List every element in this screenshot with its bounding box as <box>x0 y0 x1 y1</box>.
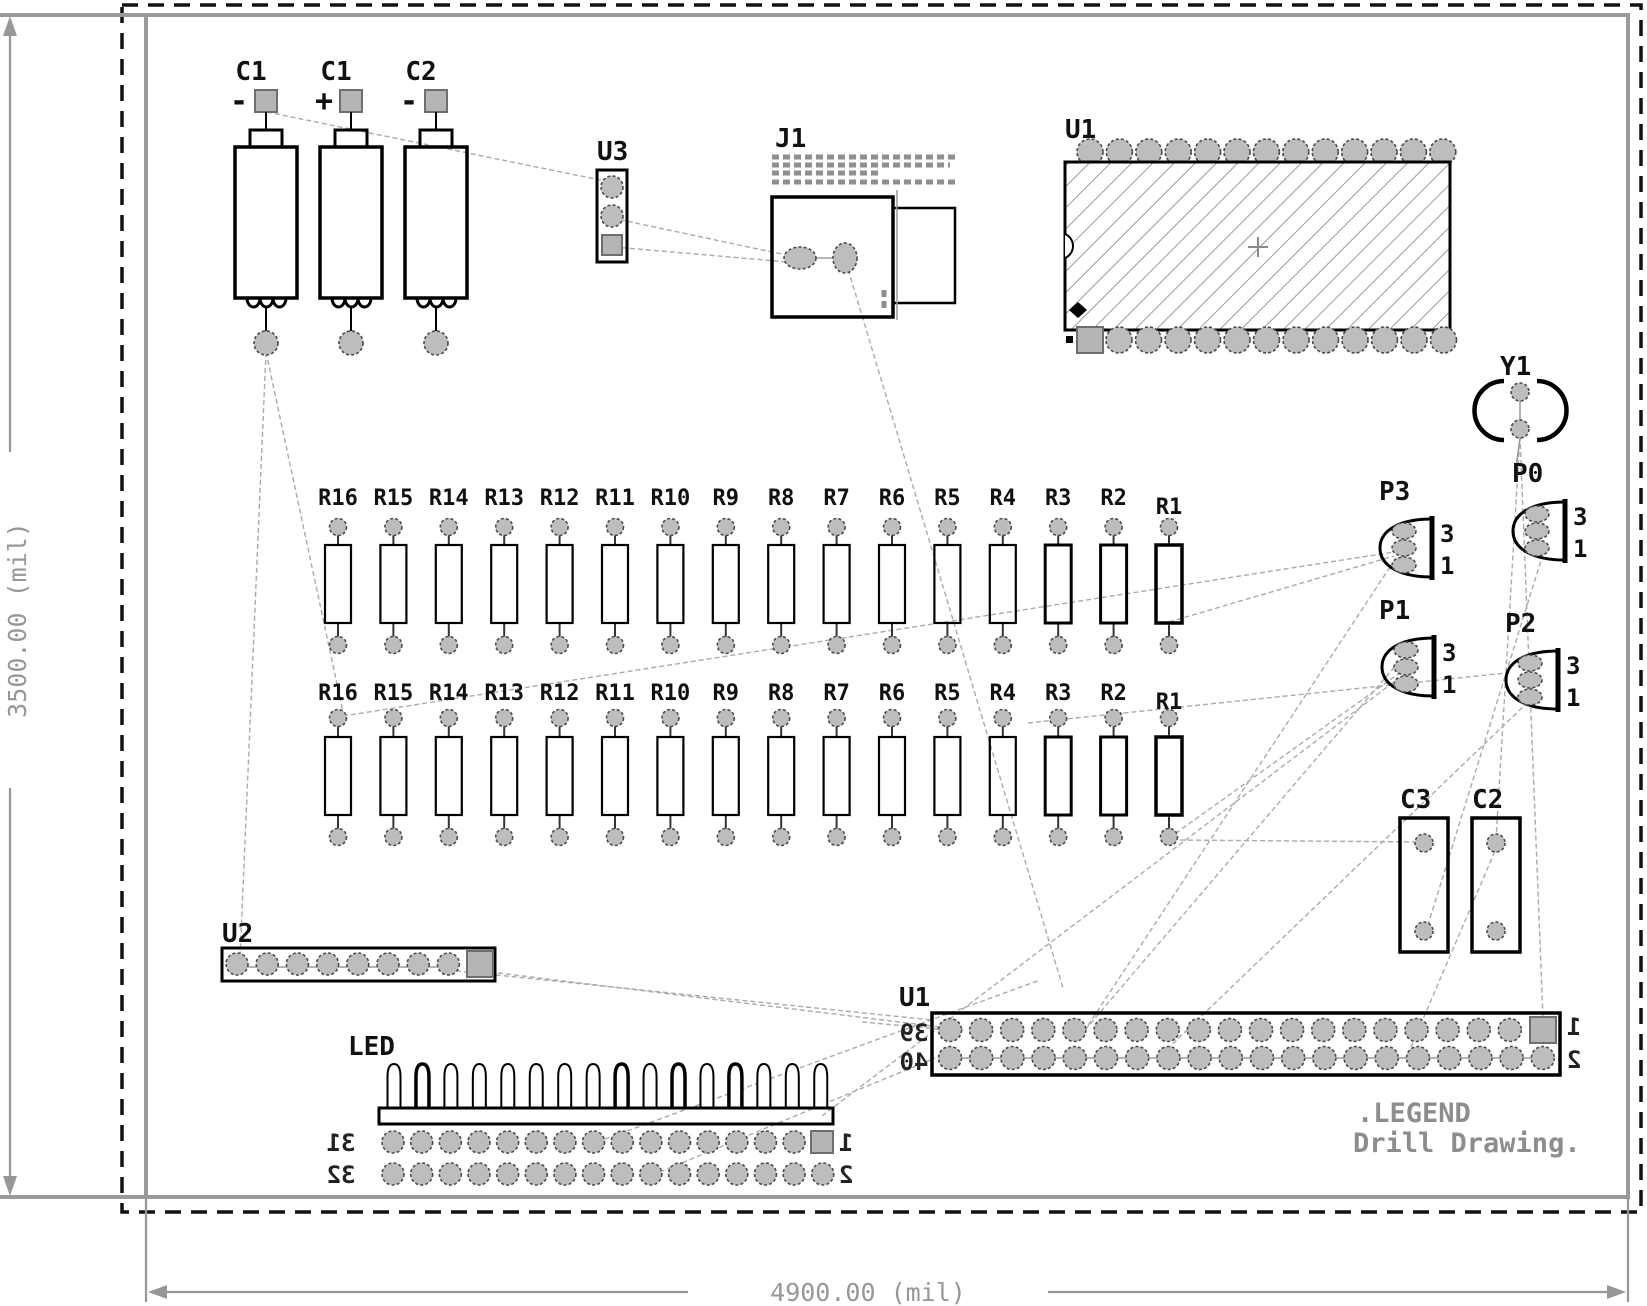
round-pad <box>583 1131 605 1153</box>
led-lens <box>644 1064 657 1108</box>
resistor-label: R14 <box>429 681 469 706</box>
round-pad <box>939 519 956 536</box>
round-pad <box>717 710 734 727</box>
round-pad <box>1136 327 1162 353</box>
ratsnest-line <box>1085 567 1390 1030</box>
resistor-body <box>1045 545 1071 623</box>
resistor-label: R6 <box>879 681 906 706</box>
round-pad <box>525 1163 547 1185</box>
round-pad <box>551 710 568 727</box>
round-pad <box>726 1163 748 1185</box>
mirrored-pin-number: 2 <box>1567 1046 1581 1074</box>
resistor-label: R4 <box>990 681 1017 706</box>
round-pad <box>1195 327 1221 353</box>
square-pad <box>811 1131 833 1153</box>
pin-number: 1 <box>1566 684 1580 712</box>
round-pad <box>551 637 568 654</box>
resistor-body <box>1101 545 1127 623</box>
resistor-row2-r9: R9 <box>713 681 740 846</box>
resistor-row1-r16: R16 <box>318 486 358 654</box>
resistor-body <box>1156 545 1182 623</box>
resistor-row1-r11: R11 <box>595 486 635 654</box>
component-c2-right: C2 <box>1472 785 1520 952</box>
round-pad <box>286 953 308 975</box>
component-led: LED 31 32 1 2 <box>327 1032 854 1189</box>
round-pad <box>884 710 901 727</box>
round-pad <box>754 1131 776 1153</box>
pin-number: 3 <box>1566 652 1580 680</box>
resistor-row2-r5: R5 <box>934 681 961 846</box>
round-pad <box>525 1131 547 1153</box>
component-p0: P0 3 1 <box>1512 459 1587 563</box>
resistor-label: R14 <box>429 486 469 511</box>
round-pad <box>754 1163 776 1185</box>
round-pad <box>497 1131 519 1153</box>
resistor-body <box>824 545 850 623</box>
oval-pad <box>1525 540 1549 556</box>
round-pad <box>551 829 568 846</box>
resistor-row1-r8: R8 <box>768 486 795 654</box>
round-pad <box>330 519 347 536</box>
round-pad <box>773 519 790 536</box>
round-pad <box>970 1019 993 1042</box>
round-pad <box>1511 420 1529 438</box>
polarity-mark: - <box>400 84 418 119</box>
arrow-left-icon <box>148 1285 167 1299</box>
component-c2-top: C2 - <box>400 57 467 355</box>
led-lens <box>615 1064 628 1108</box>
square-pad <box>1077 327 1103 353</box>
round-pad <box>1250 1019 1273 1042</box>
u1-connector-body <box>932 1013 1560 1075</box>
round-pad <box>1125 1019 1148 1042</box>
round-pad <box>440 829 457 846</box>
square-pad <box>467 951 493 977</box>
round-pad <box>662 637 679 654</box>
round-pad <box>607 637 624 654</box>
resistor-body <box>934 737 960 815</box>
resistor-row1-r13: R13 <box>484 486 524 654</box>
resistor-body <box>1045 737 1071 815</box>
round-pad <box>828 710 845 727</box>
round-pad <box>726 1131 748 1153</box>
resistor-row2-r6: R6 <box>879 681 906 846</box>
dimension-bottom: 4900.00 (mil) <box>148 1278 1626 1306</box>
round-pad <box>1105 710 1122 727</box>
mirrored-pin-number: 1 <box>839 1129 853 1157</box>
round-pad <box>1498 1019 1521 1042</box>
resistor-body <box>713 737 739 815</box>
resistor-label: R6 <box>879 486 906 511</box>
component-p3: P3 3 1 <box>1379 477 1454 580</box>
ratsnest-line <box>1085 664 1397 1030</box>
round-pad <box>437 953 459 975</box>
led-lens <box>700 1064 713 1108</box>
oval-pad <box>1525 523 1549 539</box>
led-lens <box>558 1064 571 1108</box>
round-pad <box>884 829 901 846</box>
resistor-label: R12 <box>540 486 580 511</box>
resistor-row2-r4: R4 <box>990 681 1017 846</box>
round-pad <box>407 953 429 975</box>
round-pad <box>601 205 623 227</box>
refdes-label: C1 <box>235 57 266 87</box>
resistor-label: R8 <box>768 681 795 706</box>
round-pad <box>1106 327 1132 353</box>
resistor-label: R2 <box>1100 486 1127 511</box>
crystal-case-arc <box>1537 381 1567 440</box>
round-pad <box>1283 327 1309 353</box>
oval-pad <box>1392 540 1416 556</box>
resistor-row2-r1: R1 <box>1156 690 1183 846</box>
round-pad <box>828 519 845 536</box>
resistor-body <box>325 737 351 815</box>
ratsnest-line <box>490 972 965 1030</box>
resistor-body <box>934 545 960 623</box>
round-pad <box>1224 327 1250 353</box>
round-pad <box>1156 1019 1179 1042</box>
oval-pad <box>1392 523 1416 539</box>
refdes-label: U3 <box>597 137 628 167</box>
led-lens <box>672 1064 685 1108</box>
round-pad <box>611 1131 633 1153</box>
round-pad <box>1219 1047 1242 1070</box>
oval-pad <box>784 247 816 269</box>
round-pad <box>1467 1019 1490 1042</box>
resistor-label: R4 <box>990 486 1017 511</box>
square-pad <box>602 235 622 255</box>
round-pad <box>884 519 901 536</box>
round-pad <box>1251 1047 1274 1070</box>
resistor-body <box>325 545 351 623</box>
round-pad <box>669 1163 691 1185</box>
resistor-body <box>491 545 517 623</box>
round-pad <box>1105 829 1122 846</box>
round-pad <box>339 331 363 355</box>
arrow-down-icon <box>3 1176 17 1196</box>
round-pad <box>496 519 513 536</box>
round-pad <box>669 1131 691 1153</box>
round-pad <box>254 331 278 355</box>
oval-pad <box>1518 689 1542 705</box>
round-pad <box>1313 1047 1336 1070</box>
round-pad <box>1001 1019 1024 1042</box>
round-pad <box>994 710 1011 727</box>
resistor-label: R7 <box>823 681 850 706</box>
pin-number: 3 <box>1573 503 1587 531</box>
legend-title: .LEGEND <box>1357 1098 1471 1129</box>
round-pad <box>697 1163 719 1185</box>
refdes-label: U1 <box>899 983 930 1013</box>
round-pad <box>783 1163 805 1185</box>
round-pad <box>330 637 347 654</box>
resistor-label: R8 <box>768 486 795 511</box>
mirrored-pin-number: 39 <box>900 1019 929 1047</box>
round-pad <box>607 519 624 536</box>
round-pad <box>828 637 845 654</box>
oval-pad <box>1392 557 1416 573</box>
round-pad <box>1500 1047 1523 1070</box>
component-p2: P2 3 1 <box>1505 609 1580 712</box>
resistor-label: R3 <box>1045 486 1072 511</box>
component-c3: C3 <box>1400 785 1448 952</box>
resistor-arrays: R16R15R14R13R12R11R10R9R8R7R6R5R4R3R2R1R… <box>318 486 1182 846</box>
resistor-body <box>547 737 573 815</box>
mirrored-pin-number: 40 <box>900 1048 929 1076</box>
mirrored-pin-number: 1 <box>1567 1013 1581 1041</box>
resistor-label: R11 <box>595 486 635 511</box>
resistor-row2-r3: R3 <box>1045 681 1072 846</box>
round-pad <box>424 331 448 355</box>
round-pad <box>662 829 679 846</box>
round-pad <box>717 829 734 846</box>
resistor-row1-r7: R7 <box>823 486 850 654</box>
resistor-row2-r2: R2 <box>1100 681 1127 846</box>
round-pad <box>496 637 513 654</box>
round-pad <box>994 519 1011 536</box>
oval-pad <box>1394 642 1418 658</box>
resistor-body <box>1101 737 1127 815</box>
round-pad <box>1063 1047 1086 1070</box>
round-pad <box>1157 1047 1180 1070</box>
round-pad <box>554 1131 576 1153</box>
resistor-body <box>491 737 517 815</box>
pin-number: 3 <box>1442 639 1456 667</box>
round-pad <box>385 710 402 727</box>
resistor-label: R1 <box>1156 495 1183 520</box>
round-pad <box>884 637 901 654</box>
resistor-row1-r1: R1 <box>1156 495 1183 654</box>
resistor-body <box>713 545 739 623</box>
resistor-label: R16 <box>318 681 358 706</box>
round-pad <box>1161 637 1178 654</box>
led-lens <box>473 1064 486 1108</box>
board-width-dimension: 4900.00 (mil) <box>770 1278 966 1306</box>
round-pad <box>440 637 457 654</box>
round-pad <box>662 519 679 536</box>
refdes-label: P0 <box>1512 459 1543 489</box>
square-pad <box>340 90 362 112</box>
resistor-label: R5 <box>934 486 961 511</box>
round-pad <box>1032 1019 1055 1042</box>
round-pad <box>1063 1019 1086 1042</box>
round-pad <box>1374 1019 1397 1042</box>
component-u1-ic: U1 <box>1065 115 1457 353</box>
led-lens <box>416 1064 429 1108</box>
round-pad <box>496 710 513 727</box>
round-pad <box>226 953 248 975</box>
round-pad <box>1431 327 1457 353</box>
round-pad <box>385 637 402 654</box>
round-pad <box>717 519 734 536</box>
led-lens <box>786 1064 799 1108</box>
refdes-label: LED <box>348 1032 395 1062</box>
component-j1: J1 <box>772 124 957 320</box>
round-pad <box>1511 383 1529 401</box>
round-pad <box>1531 1047 1554 1070</box>
resistor-row1-r2: R2 <box>1100 486 1127 654</box>
round-pad <box>1343 1019 1366 1042</box>
round-pad <box>1469 1047 1492 1070</box>
round-pad <box>1401 327 1427 353</box>
oval-pad <box>1518 672 1542 688</box>
resistor-row2-r10: R10 <box>651 681 691 846</box>
round-pad <box>640 1131 662 1153</box>
resistor-body <box>879 545 905 623</box>
round-pad <box>1254 327 1280 353</box>
round-pad <box>468 1131 490 1153</box>
round-pad <box>1095 1047 1118 1070</box>
resistor-row1-r12: R12 <box>540 486 580 654</box>
polarity-mark: + <box>315 84 333 119</box>
resistor-body <box>1156 737 1182 815</box>
pin-number: 1 <box>1440 552 1454 580</box>
round-pad <box>382 1131 404 1153</box>
led-lens <box>388 1064 401 1108</box>
oval-pad <box>1394 659 1418 675</box>
pin-number: 3 <box>1440 520 1454 548</box>
ratsnest-line <box>1169 672 1401 838</box>
mirrored-pin-number: 32 <box>327 1161 356 1189</box>
resistor-row1-r9: R9 <box>713 486 740 654</box>
square-pad <box>255 90 277 112</box>
resistor-body <box>768 737 794 815</box>
round-pad <box>496 829 513 846</box>
resistor-body <box>436 737 462 815</box>
round-pad <box>1050 637 1067 654</box>
square-pad <box>1530 1017 1556 1043</box>
ratsnest-line <box>1172 840 1425 842</box>
resistor-body <box>824 737 850 815</box>
round-pad <box>939 1047 962 1070</box>
resistor-label: R15 <box>374 681 414 706</box>
round-pad <box>607 710 624 727</box>
resistor-row1-r10: R10 <box>651 486 691 654</box>
oval-pad <box>1394 676 1418 692</box>
component-u2: U2 <box>222 919 495 981</box>
ratsnest-line <box>846 262 1063 988</box>
refdes-label: U2 <box>222 919 253 949</box>
mirrored-pin-number: 31 <box>327 1129 356 1157</box>
round-pad <box>1126 1047 1149 1070</box>
resistor-body <box>547 545 573 623</box>
board-height-dimension: 3500.00 (mil) <box>3 522 32 718</box>
resistor-body <box>657 545 683 623</box>
round-pad <box>411 1131 433 1153</box>
resistor-label: R16 <box>318 486 358 511</box>
resistor-row2-r11: R11 <box>595 681 635 846</box>
resistor-row2-r13: R13 <box>484 681 524 846</box>
round-pad <box>773 710 790 727</box>
resistor-body <box>657 737 683 815</box>
round-pad <box>1105 637 1122 654</box>
resistor-body <box>768 545 794 623</box>
refdes-label: P2 <box>1505 609 1536 639</box>
resistor-row2-r14: R14 <box>429 681 469 846</box>
resistor-body <box>602 545 628 623</box>
resistor-row1-r14: R14 <box>429 486 469 654</box>
pin-number: 1 <box>1442 671 1456 699</box>
mirrored-pin-number: 2 <box>839 1161 853 1189</box>
refdes-label: P1 <box>1379 596 1410 626</box>
round-pad <box>1313 327 1339 353</box>
round-pad <box>377 953 399 975</box>
fiducial-dot <box>1066 336 1073 343</box>
resistor-label: R2 <box>1100 681 1127 706</box>
resistor-label: R9 <box>713 486 740 511</box>
resistor-label: R10 <box>651 681 691 706</box>
led-lens <box>587 1064 600 1108</box>
round-pad <box>1094 1019 1117 1042</box>
resistor-body <box>990 545 1016 623</box>
resistor-label: R12 <box>540 681 580 706</box>
round-pad <box>939 829 956 846</box>
resistor-label: R15 <box>374 486 414 511</box>
resistor-label: R9 <box>713 681 740 706</box>
round-pad <box>1312 1019 1335 1042</box>
round-pad <box>1050 710 1067 727</box>
led-pads <box>382 1131 834 1185</box>
round-pad <box>994 637 1011 654</box>
resistor-row1-r6: R6 <box>879 486 906 654</box>
component-c1b: C1 + <box>315 57 382 355</box>
j1-shield <box>893 208 955 303</box>
pin-number: 1 <box>1573 535 1587 563</box>
resistor-label: R13 <box>484 681 524 706</box>
legend-block: .LEGEND Drill Drawing. <box>1353 1098 1581 1159</box>
round-pad <box>1187 1019 1210 1042</box>
arrow-right-icon <box>1607 1285 1626 1299</box>
round-pad <box>385 829 402 846</box>
resistor-body <box>990 737 1016 815</box>
ratsnest-line <box>448 970 932 1020</box>
u2-pads <box>226 953 459 975</box>
round-pad <box>1050 829 1067 846</box>
round-pad <box>939 637 956 654</box>
round-pad <box>1032 1047 1055 1070</box>
round-pad <box>330 710 347 727</box>
round-pad <box>1375 1047 1398 1070</box>
round-pad <box>1344 1047 1367 1070</box>
round-pad <box>347 953 369 975</box>
led-lens <box>814 1064 827 1108</box>
resistor-row2-r12: R12 <box>540 681 580 846</box>
round-pad <box>717 637 734 654</box>
resistor-body <box>436 545 462 623</box>
component-c1a: C1 - <box>230 57 297 355</box>
resistor-label: R11 <box>595 681 635 706</box>
drill-drawing-canvas: 3500.00 (mil) 4900.00 (mil) C1 - C1 + C2… <box>0 0 1647 1306</box>
resistor-row2-r7: R7 <box>823 681 850 846</box>
round-pad <box>1407 1047 1430 1070</box>
oval-pad <box>1518 655 1542 671</box>
round-pad <box>1001 1047 1024 1070</box>
round-pad <box>439 1131 461 1153</box>
round-pad <box>497 1163 519 1185</box>
led-lens <box>729 1064 742 1108</box>
round-pad <box>828 829 845 846</box>
round-pad <box>256 953 278 975</box>
round-pad <box>1405 1019 1428 1042</box>
round-pad <box>440 710 457 727</box>
round-pad <box>773 829 790 846</box>
refdes-label: C3 <box>1400 785 1431 815</box>
round-pad <box>468 1163 490 1185</box>
refdes-label: C2 <box>1472 785 1503 815</box>
component-y1: Y1 <box>1475 352 1567 468</box>
round-pad <box>1282 1047 1305 1070</box>
oval-pad <box>1525 506 1549 522</box>
